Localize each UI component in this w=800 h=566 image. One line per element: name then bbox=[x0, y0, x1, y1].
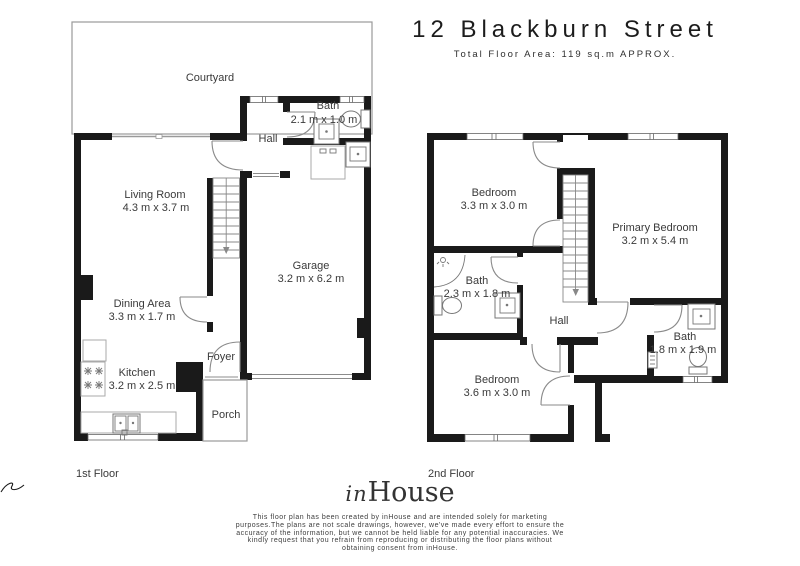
room-label-bedroom1: Bedroom bbox=[472, 187, 517, 199]
first-floor-doors bbox=[180, 112, 315, 372]
logo-swash-icon bbox=[0, 478, 30, 496]
shower-icon bbox=[434, 255, 465, 287]
room-label-garage: Garage bbox=[293, 260, 330, 272]
staircase-first-floor bbox=[213, 178, 240, 258]
entry-door-arc bbox=[212, 141, 243, 170]
room-label-kitchen: Kitchen bbox=[119, 367, 156, 379]
room-dims-living: 4.3 m x 3.7 m bbox=[123, 202, 190, 214]
room-label-dining: Dining Area bbox=[114, 298, 172, 310]
first-floor-plan: Courtyard Hall Bath 2.1 m x 1.0 m Living… bbox=[72, 22, 372, 480]
room-label-primary: Primary Bedroom bbox=[612, 222, 698, 234]
room-dims-kitchen: 3.2 m x 2.5 m bbox=[109, 380, 176, 392]
room-dims-bath1: 2.3 m x 1.8 m bbox=[444, 288, 511, 300]
room-label-foyer: Foyer bbox=[207, 351, 235, 363]
footer: inHouse This floor plan has been created… bbox=[0, 478, 800, 553]
bath1-door-arc bbox=[491, 257, 518, 283]
room-dims-bedroom1: 3.3 m x 3.0 m bbox=[461, 200, 528, 212]
floorplan-page: 12 Blackburn Street Total Floor Area: 11… bbox=[0, 0, 800, 566]
room-dims-dining: 3.3 m x 1.7 m bbox=[109, 311, 176, 323]
logo-text-house: House bbox=[368, 477, 455, 508]
room-label-courtyard: Courtyard bbox=[186, 72, 234, 84]
sink-icon-bath2 bbox=[688, 304, 715, 329]
second-floor-fixtures bbox=[434, 255, 715, 374]
room-label-bath1: Bath bbox=[466, 275, 489, 287]
room-label-hall: Hall bbox=[259, 133, 278, 145]
bedroom1-door-arc bbox=[533, 220, 560, 246]
room-dims-garage: 3.2 m x 6.2 m bbox=[278, 273, 345, 285]
room-label-bedroom2: Bedroom bbox=[475, 374, 520, 386]
room-label-bath2: Bath bbox=[674, 331, 697, 343]
room-dims-bath2: 1.8 m x 1.9 m bbox=[650, 344, 717, 356]
bath2-door-arc bbox=[654, 305, 682, 332]
second-floor-plan: Bedroom 3.3 m x 3.0 m Primary Bedroom 3.… bbox=[427, 133, 728, 480]
fridge-icon bbox=[83, 340, 106, 361]
garage-sink-icon bbox=[346, 142, 370, 167]
room-dims-bedroom2: 3.6 m x 3.0 m bbox=[464, 387, 531, 399]
room-label-hall2: Hall bbox=[550, 315, 569, 327]
room-label-porch: Porch bbox=[212, 409, 241, 421]
room-dims-primary: 3.2 m x 5.4 m bbox=[622, 235, 689, 247]
stairs-down-arrow bbox=[223, 247, 230, 254]
room-label-bath: Bath bbox=[317, 100, 340, 112]
washer-icon bbox=[311, 146, 345, 179]
stairs-down-arrow bbox=[573, 289, 580, 296]
staircase-second-floor bbox=[563, 175, 588, 302]
kitchen-sink-icon bbox=[113, 414, 140, 435]
logo-text-in: in bbox=[345, 482, 367, 506]
bedroom2-door-arc bbox=[532, 344, 560, 372]
bedroom1-closet-door-arc bbox=[533, 142, 560, 168]
room-label-living: Living Room bbox=[124, 189, 185, 201]
inhouse-logo: inHouse bbox=[0, 478, 800, 508]
stove-icon bbox=[81, 362, 105, 396]
primary-bedroom-door-arc bbox=[597, 302, 628, 333]
bedroom2-closet-door-arc bbox=[541, 376, 570, 405]
dining-door-arc bbox=[180, 297, 207, 322]
room-dims-bath: 2.1 m x 1.0 m bbox=[291, 114, 358, 126]
disclaimer-text: This floor plan has been created by inHo… bbox=[230, 514, 570, 553]
